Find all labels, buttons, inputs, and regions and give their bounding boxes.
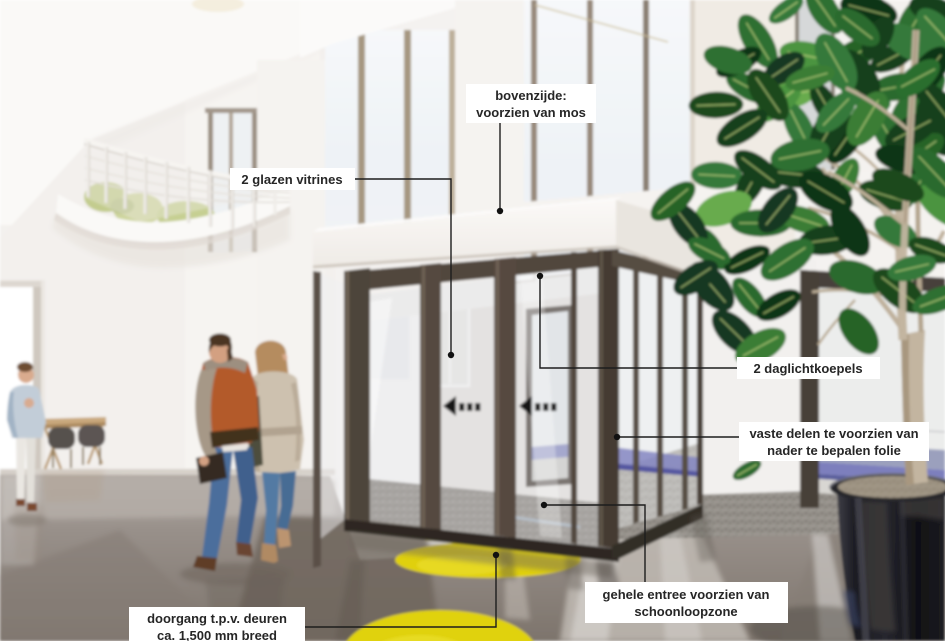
svg-text:2 daglichtkoepels: 2 daglichtkoepels <box>753 361 862 376</box>
svg-text:gehele entree voorzien van: gehele entree voorzien van <box>603 587 770 602</box>
svg-text:ca. 1,500 mm breed: ca. 1,500 mm breed <box>157 628 277 641</box>
svg-text:schoonloopzone: schoonloopzone <box>634 604 737 619</box>
svg-text:2 glazen vitrines: 2 glazen vitrines <box>241 172 342 187</box>
svg-text:vaste delen te voorzien van: vaste delen te voorzien van <box>749 426 918 441</box>
svg-text:nader te bepalen folie: nader te bepalen folie <box>767 443 901 458</box>
svg-text:voorzien van mos: voorzien van mos <box>476 105 586 120</box>
svg-text:doorgang t.p.v. deuren: doorgang t.p.v. deuren <box>147 611 287 626</box>
svg-text:bovenzijde:: bovenzijde: <box>495 88 567 103</box>
